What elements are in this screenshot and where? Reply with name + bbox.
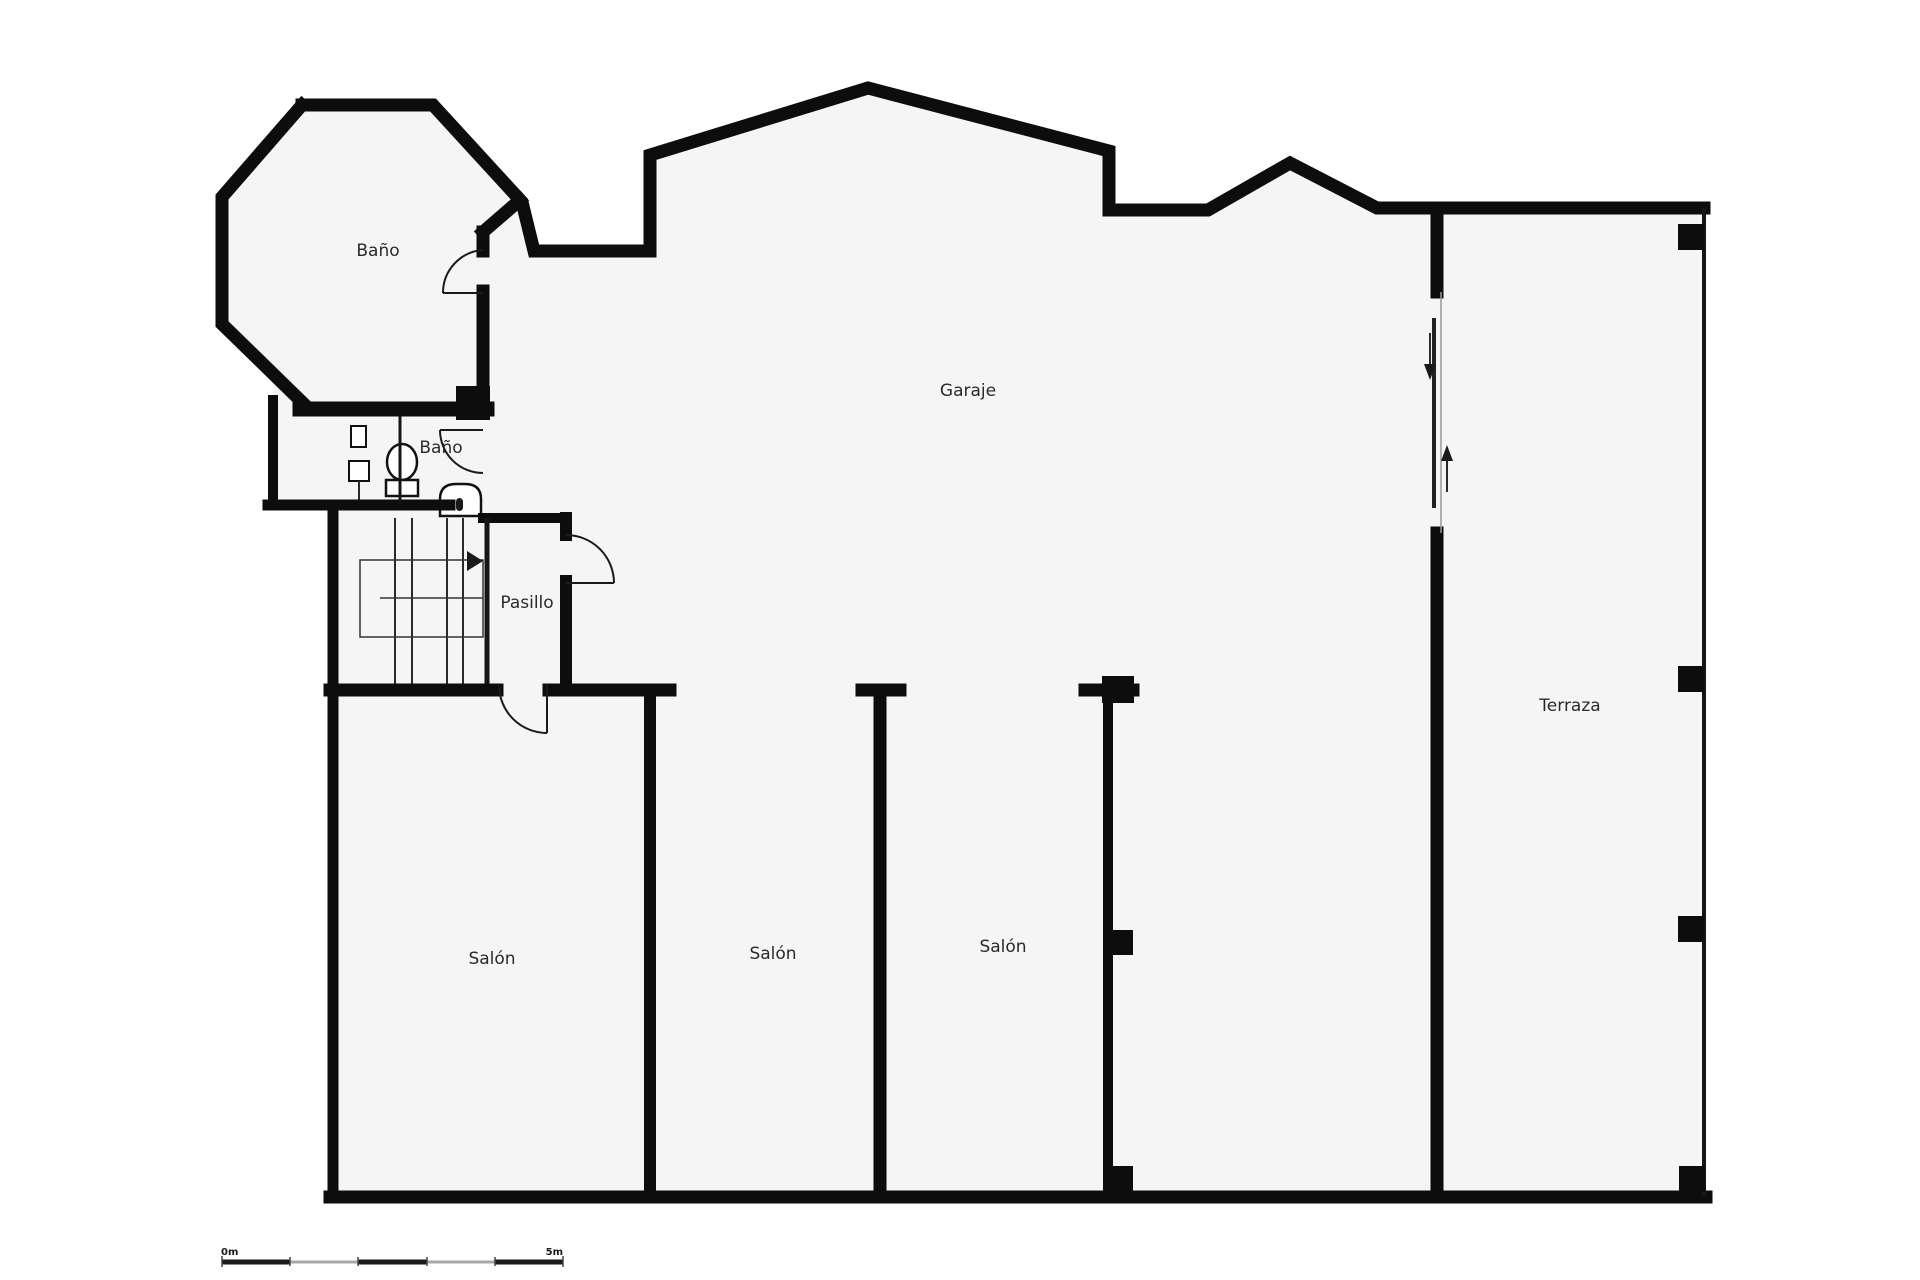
toilet-bowl-icon bbox=[387, 444, 417, 480]
sink-tap-icon bbox=[456, 498, 463, 511]
room-label-garaje: Garaje bbox=[940, 381, 996, 401]
pillar bbox=[1108, 1166, 1133, 1192]
wall-cabinet-icon bbox=[351, 426, 366, 447]
small-sink-icon bbox=[349, 461, 369, 481]
floor-plan-canvas: Baño Baño Garaje Pasillo Salón Salón Sal… bbox=[0, 0, 1920, 1280]
floor-area bbox=[222, 88, 1703, 1197]
terraza-pillar bbox=[1679, 1166, 1705, 1192]
room-label-bano-small: Baño bbox=[419, 438, 462, 458]
room-label-pasillo: Pasillo bbox=[500, 593, 553, 613]
floor-polygon bbox=[222, 88, 1703, 1197]
scale-end-label: 5m bbox=[546, 1247, 563, 1258]
scale-bar: 0m 5m bbox=[221, 1247, 563, 1267]
room-label-salon-right: Salón bbox=[979, 937, 1026, 957]
floor-plan-page: Baño Baño Garaje Pasillo Salón Salón Sal… bbox=[0, 0, 1920, 1280]
room-label-salon-middle: Salón bbox=[749, 944, 796, 964]
scale-start-label: 0m bbox=[221, 1247, 238, 1258]
room-label-bano-octagon: Baño bbox=[356, 241, 399, 261]
room-label-salon-left: Salón bbox=[468, 949, 515, 969]
terraza-pillar bbox=[1678, 916, 1704, 942]
terraza-pillar bbox=[1678, 224, 1704, 250]
toilet-tank-icon bbox=[386, 480, 418, 496]
room-label-terraza: Terraza bbox=[1538, 696, 1600, 716]
pillar bbox=[1108, 930, 1133, 955]
terraza-pillar bbox=[1678, 666, 1704, 692]
